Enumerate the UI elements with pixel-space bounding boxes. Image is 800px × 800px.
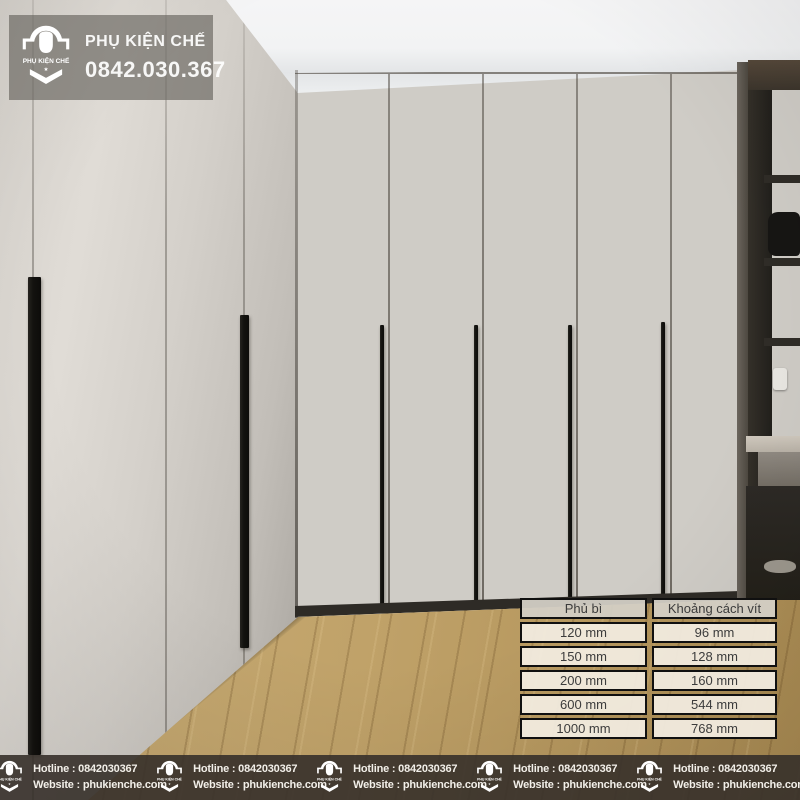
- door-seam: [388, 74, 390, 604]
- brand-logo-icon: [633, 759, 666, 797]
- table-cell: 600 mm: [520, 694, 647, 715]
- table-cell: 128 mm: [652, 646, 777, 667]
- watermark-text: PHỤ KIỆN CHẾ 0842.030.367: [85, 33, 226, 83]
- hotline-text: Hotline : 0842030367: [673, 762, 800, 778]
- footer-contact-block: Hotline : 0842030367 Website : phukiench…: [320, 759, 480, 797]
- door-seam: [165, 0, 167, 780]
- wardrobe-base-kick: [295, 70, 740, 618]
- hotline-text: Hotline : 0842030367: [513, 762, 647, 778]
- contact-lines: Hotline : 0842030367 Website : phukiench…: [193, 762, 327, 794]
- contact-lines: Hotline : 0842030367 Website : phukiench…: [33, 762, 167, 794]
- brand-logo-icon: [0, 759, 26, 797]
- table-cell: 200 mm: [520, 670, 647, 691]
- door-seam: [670, 74, 672, 604]
- contact-lines: Hotline : 0842030367 Website : phukiench…: [513, 762, 647, 794]
- brand-logo-icon: [473, 759, 506, 797]
- table-cell: 150 mm: [520, 646, 647, 667]
- brand-logo-icon: [15, 22, 77, 94]
- desk-drawer: [758, 452, 800, 486]
- wardrobe-handle: [28, 277, 41, 755]
- desk-top: [746, 436, 800, 452]
- column-header: Phủ bì: [520, 598, 647, 619]
- wardrobe-handle: [568, 325, 572, 608]
- hotline-text: Hotline : 0842030367: [33, 762, 167, 778]
- hotline-text: Hotline : 0842030367: [353, 762, 487, 778]
- wardrobe-handle: [240, 315, 249, 648]
- footer-contact-block: Hotline : 0842030367 Website : phukiench…: [480, 759, 640, 797]
- table-cell: 96 mm: [652, 622, 777, 643]
- table-cell: 1000 mm: [520, 718, 647, 739]
- shelf-top: [748, 60, 800, 90]
- desk-dishes: [764, 560, 796, 573]
- contact-lines: Hotline : 0842030367 Website : phukiench…: [673, 762, 800, 794]
- shelf-board: [764, 175, 800, 183]
- brand-logo-icon: [153, 759, 186, 797]
- website-text: Website : phukienche.com: [353, 778, 487, 794]
- brand-phone: 0842.030.367: [85, 57, 226, 83]
- door-seam: [482, 74, 484, 604]
- contact-footer: Hotline : 0842030367 Website : phukiench…: [0, 755, 800, 800]
- website-text: Website : phukienche.com: [513, 778, 647, 794]
- shelf-board: [764, 338, 800, 346]
- table-cell: 120 mm: [520, 622, 647, 643]
- website-text: Website : phukienche.com: [673, 778, 800, 794]
- footer-contact-block: Hotline : 0842030367 Website : phukiench…: [0, 759, 160, 797]
- spec-table-column-phu-bi: Phủ bì 120 mm 150 mm 200 mm 600 mm 1000 …: [520, 598, 647, 739]
- promo-photo: PHỤ KIỆN CHẾ 0842.030.367 Phủ bì 120 mm …: [0, 0, 800, 800]
- website-text: Website : phukienche.com: [33, 778, 167, 794]
- decor-object: [768, 212, 800, 256]
- table-cell: 768 mm: [652, 718, 777, 739]
- wall-outlet: [773, 368, 787, 390]
- footer-contact-block: Hotline : 0842030367 Website : phukiench…: [160, 759, 320, 797]
- hotline-text: Hotline : 0842030367: [193, 762, 327, 778]
- table-cell: 160 mm: [652, 670, 777, 691]
- desk-under-shadow: [746, 486, 800, 600]
- website-text: Website : phukienche.com: [193, 778, 327, 794]
- door-seam: [576, 74, 578, 604]
- wardrobe-handle: [474, 325, 478, 608]
- brand-name: PHỤ KIỆN CHẾ: [85, 33, 226, 51]
- wardrobe-handle: [661, 322, 665, 608]
- contact-lines: Hotline : 0842030367 Website : phukiench…: [353, 762, 487, 794]
- shelf-board: [764, 258, 800, 266]
- brand-logo-icon: [313, 759, 346, 797]
- back-wall-wardrobe: [295, 70, 740, 618]
- spec-table-column-khoang-cach-vit: Khoảng cách vít 96 mm 128 mm 160 mm 544 …: [652, 598, 777, 739]
- wardrobe-handle: [380, 325, 384, 608]
- footer-contact-block: Hotline : 0842030367 Website : phukiench…: [640, 759, 800, 797]
- table-cell: 544 mm: [652, 694, 777, 715]
- column-header: Khoảng cách vít: [652, 598, 777, 619]
- brand-watermark: PHỤ KIỆN CHẾ 0842.030.367: [9, 15, 213, 100]
